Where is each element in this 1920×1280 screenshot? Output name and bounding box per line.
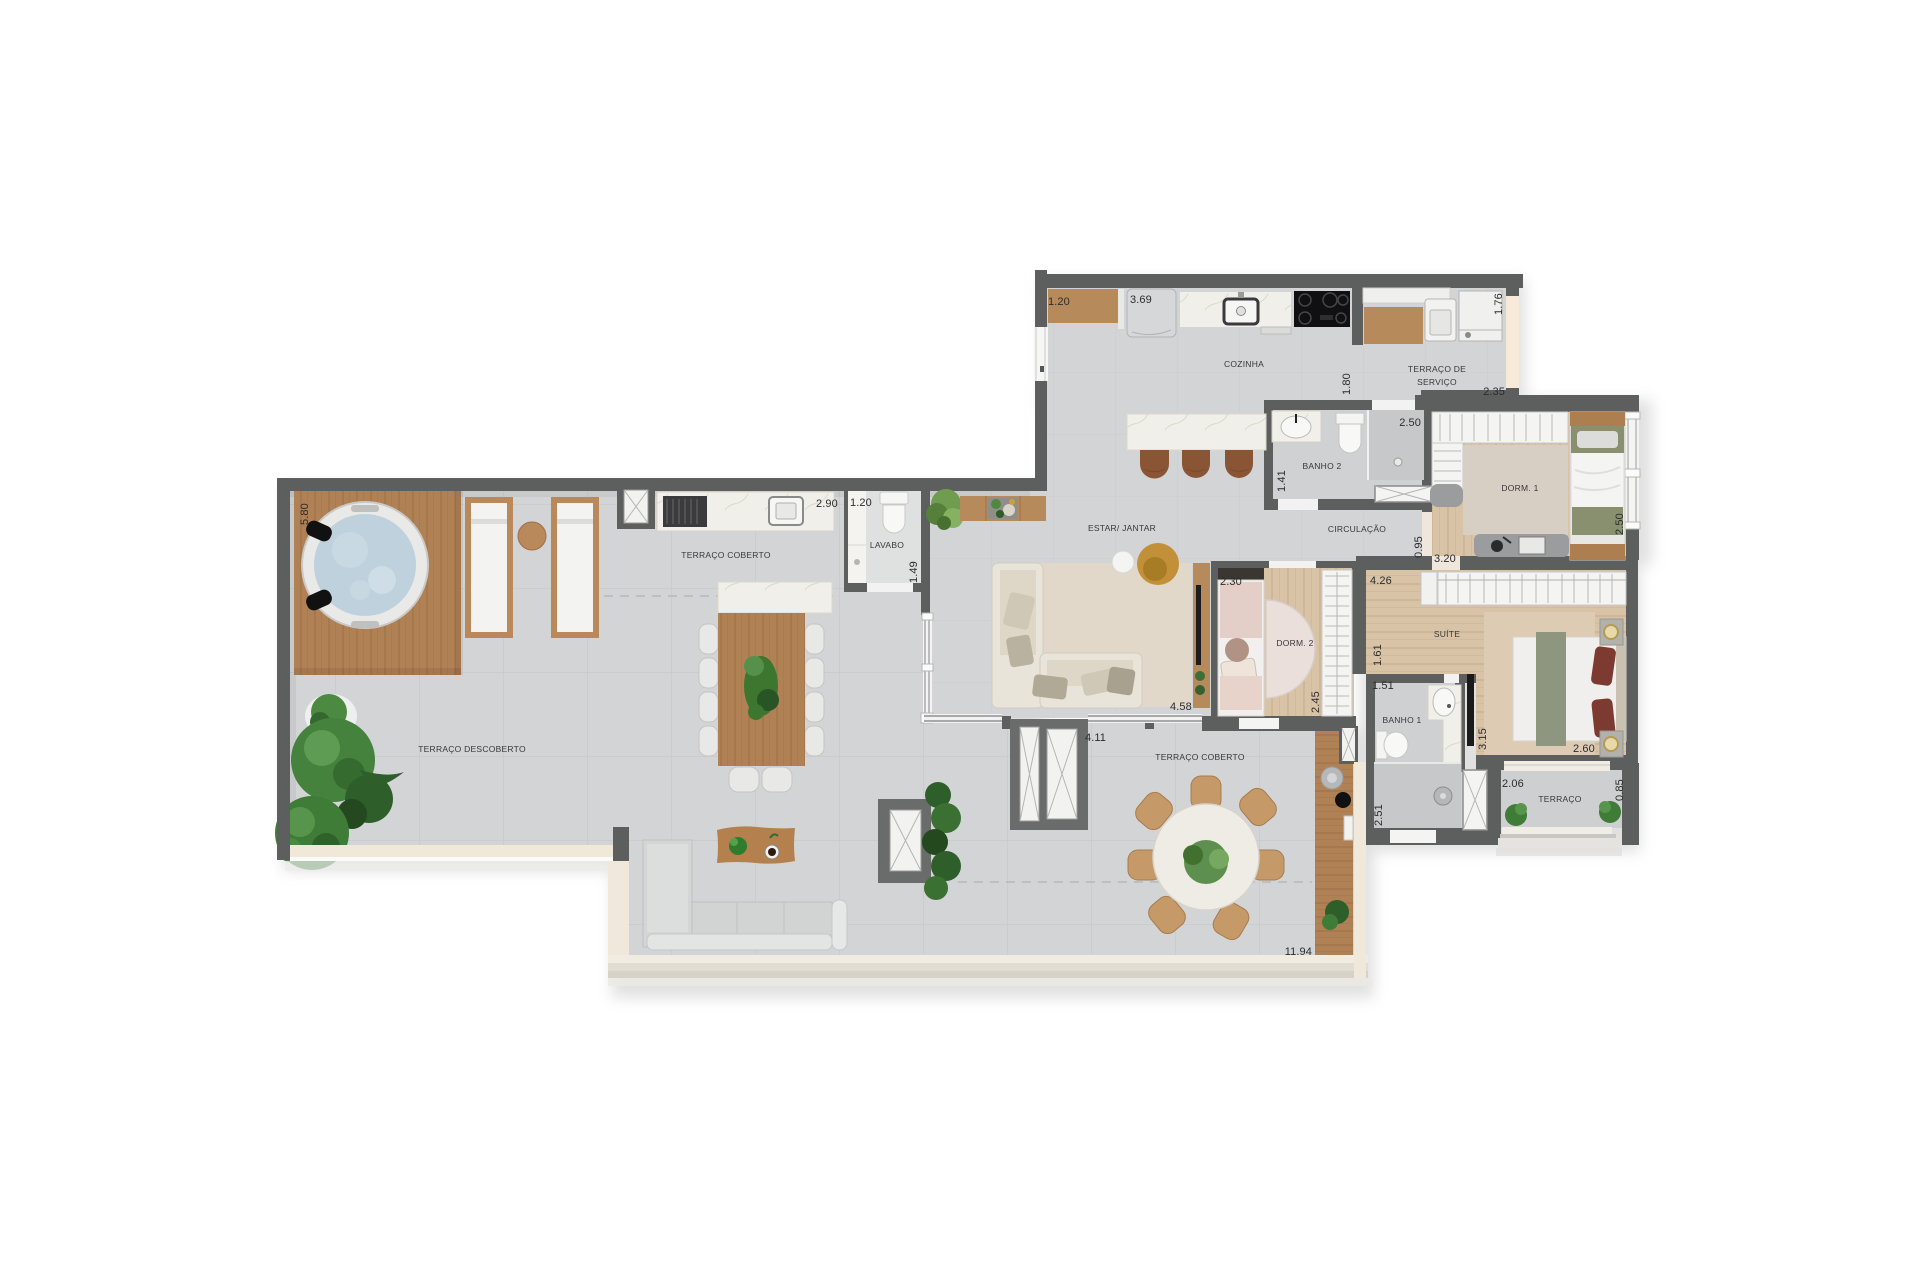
svg-text:2.60: 2.60 — [1573, 743, 1595, 755]
svg-text:3.15: 3.15 — [1477, 728, 1489, 750]
svg-text:BANHO 2: BANHO 2 — [1302, 461, 1341, 471]
svg-text:2.35: 2.35 — [1483, 386, 1505, 398]
svg-text:DORM. 2: DORM. 2 — [1276, 638, 1313, 648]
svg-text:DORM. 1: DORM. 1 — [1501, 483, 1538, 493]
svg-text:2.50: 2.50 — [1399, 417, 1421, 429]
svg-text:1.41: 1.41 — [1276, 470, 1288, 492]
svg-text:0.85: 0.85 — [1614, 779, 1626, 801]
svg-text:3.69: 3.69 — [1130, 294, 1152, 306]
svg-text:COZINHA: COZINHA — [1224, 359, 1264, 369]
svg-text:1.61: 1.61 — [1372, 644, 1384, 666]
svg-text:1.20: 1.20 — [1048, 296, 1070, 308]
svg-text:2.06: 2.06 — [1502, 778, 1524, 790]
svg-text:CIRCULAÇÃO: CIRCULAÇÃO — [1328, 524, 1386, 534]
svg-text:TERRAÇO COBERTO: TERRAÇO COBERTO — [1155, 752, 1245, 762]
svg-text:2.90: 2.90 — [816, 498, 838, 510]
svg-text:TERRAÇO DE: TERRAÇO DE — [1408, 364, 1466, 374]
svg-text:4.11: 4.11 — [1085, 732, 1106, 744]
svg-text:0.95: 0.95 — [1413, 536, 1425, 558]
svg-text:1.51: 1.51 — [1372, 680, 1394, 692]
svg-text:SUÍTE: SUÍTE — [1434, 629, 1460, 639]
svg-text:4.58: 4.58 — [1170, 701, 1192, 713]
svg-text:2.51: 2.51 — [1373, 804, 1385, 826]
svg-text:2.50: 2.50 — [1614, 513, 1626, 535]
svg-text:TERRAÇO COBERTO: TERRAÇO COBERTO — [681, 550, 771, 560]
svg-text:LAVABO: LAVABO — [870, 540, 904, 550]
svg-text:1.76: 1.76 — [1493, 293, 1505, 315]
svg-text:1.49: 1.49 — [908, 561, 920, 583]
svg-text:BANHO 1: BANHO 1 — [1382, 715, 1421, 725]
svg-text:4.26: 4.26 — [1370, 575, 1392, 587]
svg-text:ESTAR/ JANTAR: ESTAR/ JANTAR — [1088, 523, 1156, 533]
svg-text:3.20: 3.20 — [1434, 553, 1456, 565]
svg-text:5.80: 5.80 — [299, 503, 311, 525]
svg-text:TERRAÇO: TERRAÇO — [1538, 794, 1581, 804]
svg-text:TERRAÇO DESCOBERTO: TERRAÇO DESCOBERTO — [418, 744, 526, 754]
svg-text:1.20: 1.20 — [850, 497, 872, 509]
svg-text:SERVIÇO: SERVIÇO — [1417, 377, 1457, 387]
svg-text:2.30: 2.30 — [1220, 576, 1242, 588]
svg-text:2.45: 2.45 — [1310, 691, 1322, 713]
svg-text:11.94: 11.94 — [1285, 946, 1312, 958]
svg-text:1.80: 1.80 — [1341, 373, 1353, 395]
